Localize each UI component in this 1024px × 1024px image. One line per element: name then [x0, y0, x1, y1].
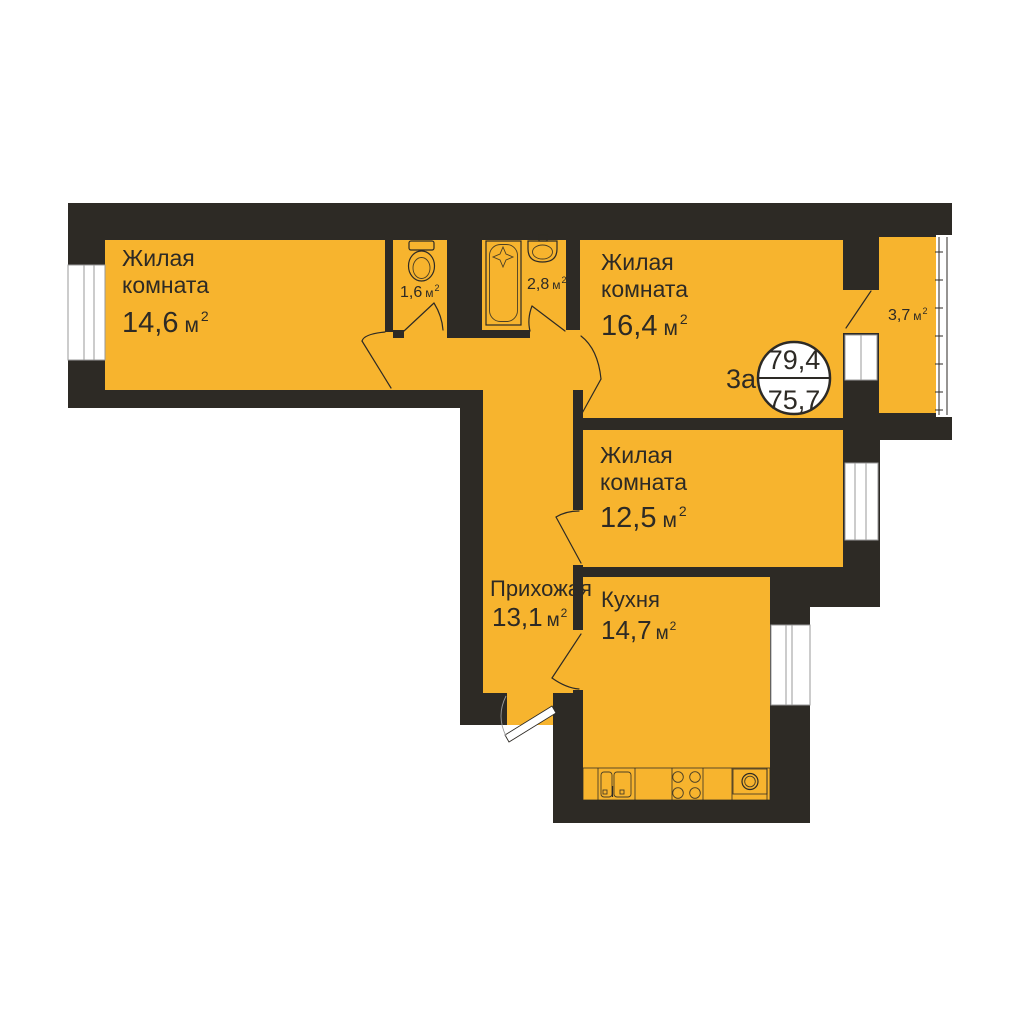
- room1-window-glass: [68, 265, 105, 360]
- bath-door-stub: [482, 330, 530, 338]
- room1-label-line2: комната: [122, 272, 209, 298]
- balcony-door-opening: [843, 290, 879, 333]
- hallway-floor: [483, 390, 573, 693]
- room2-label-line1: Жилая: [601, 249, 674, 275]
- corridor-floor: [393, 330, 580, 390]
- kitchen-label: Кухня: [601, 587, 660, 612]
- vent-shaft-wall: [447, 240, 482, 338]
- kitchen-window: [771, 625, 810, 705]
- room3-label-line2: комната: [600, 469, 687, 495]
- room2-label-line2: комната: [601, 276, 688, 302]
- floor-plan: 3а 79,4 75,7 Жилая комната 14,6м2 1,6м2 …: [0, 0, 1024, 1024]
- room3-window: [845, 463, 878, 540]
- room3-window-glass: [845, 463, 878, 540]
- room3-label-line1: Жилая: [600, 442, 673, 468]
- room2-corner-wall: [573, 390, 583, 430]
- hallway-label: Прихожая: [490, 576, 592, 601]
- badge-living-area: 75,7: [768, 385, 821, 415]
- balcony-floor: [879, 237, 938, 413]
- room1-window: [68, 265, 105, 360]
- balcony-glazing: [935, 235, 952, 417]
- kitchen-window-glass: [771, 625, 810, 705]
- room2-balcony-window: [845, 335, 877, 380]
- wc-door-stub: [393, 330, 404, 338]
- room1-label-line1: Жилая: [122, 245, 195, 271]
- badge-total-area: 79,4: [768, 345, 821, 375]
- floor-plan-page: 3а 79,4 75,7 Жилая комната 14,6м2 1,6м2 …: [0, 0, 1024, 1024]
- unit-type-label: 3а: [726, 364, 757, 394]
- balcony-glazing-strip: [936, 235, 952, 417]
